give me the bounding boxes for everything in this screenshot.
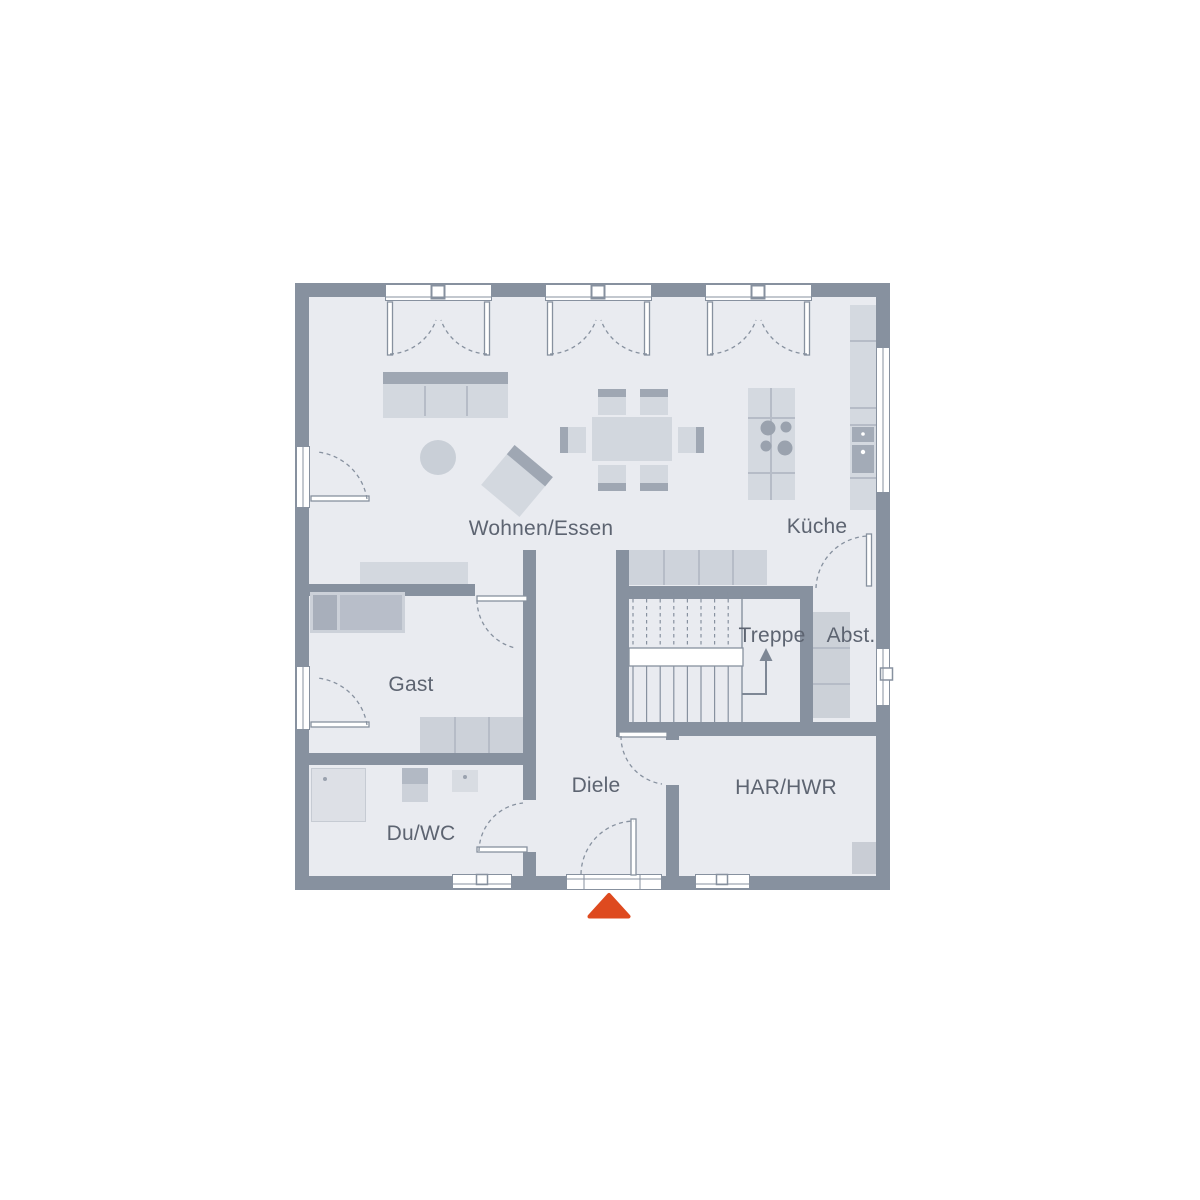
stairs-up-arrow-icon (742, 648, 773, 694)
appliance-dots (861, 432, 865, 454)
room-label-duwc: Du/WC (387, 822, 456, 846)
room-label-abst: Abst. (827, 624, 876, 648)
room-label-kueche: Küche (787, 515, 848, 539)
floor-plan-canvas: Wohnen/Essen Küche Gast Treppe Abst. Die… (0, 0, 1200, 1200)
room-label-diele: Diele (572, 774, 621, 798)
stair-lower-flight-treads (633, 666, 728, 722)
entrance-triangle-icon (590, 895, 629, 917)
window-detail-lines (303, 297, 883, 889)
room-label-gast: Gast (388, 673, 433, 697)
room-label-wohnen-essen: Wohnen/Essen (469, 517, 613, 541)
room-label-treppe: Treppe (739, 624, 806, 648)
stair-upper-flight-treads (633, 592, 728, 647)
room-label-har-hwr: HAR/HWR (735, 776, 837, 800)
staircase (629, 592, 773, 722)
fixture-dots (323, 775, 467, 781)
cooktop-burners-icon (761, 421, 793, 456)
stair-landing (629, 648, 743, 666)
plan-annotations (0, 0, 1200, 1200)
